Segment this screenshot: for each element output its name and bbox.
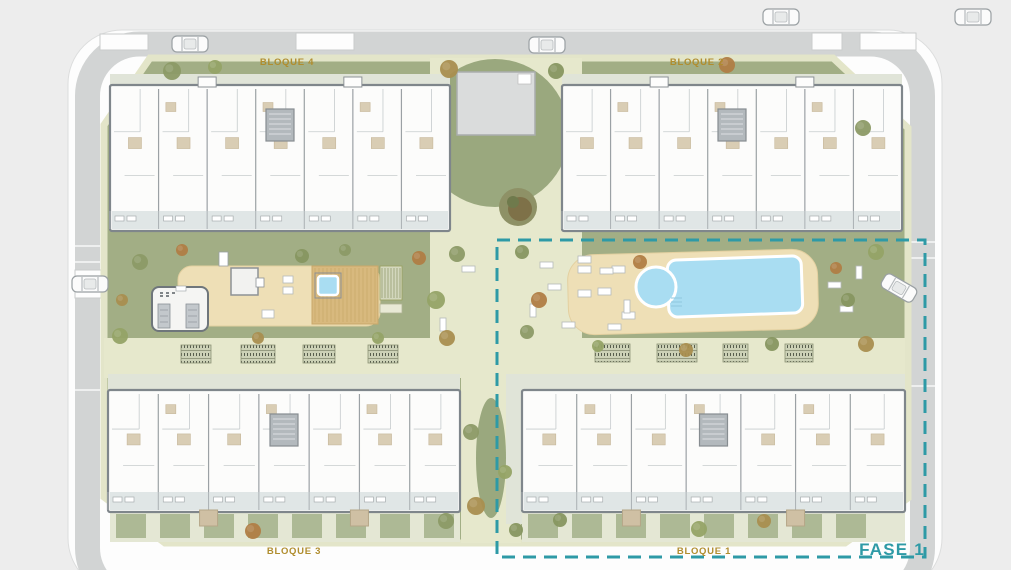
building-bloque-4[interactable] — [110, 77, 450, 231]
sun-lounger — [608, 324, 621, 330]
sun-lounger — [840, 306, 853, 312]
tree-icon — [679, 343, 693, 357]
tree-icon — [858, 336, 874, 352]
tree-icon — [515, 245, 529, 259]
stair-core — [266, 109, 294, 141]
bloque-4-label: BLOQUE 4 — [260, 57, 314, 68]
stair-core — [718, 109, 746, 141]
tree-icon — [531, 292, 547, 308]
sun-lounger — [600, 268, 613, 274]
tree-icon — [163, 62, 181, 80]
garden-plot — [181, 345, 211, 363]
tree-icon — [855, 120, 871, 136]
tree-icon — [295, 249, 309, 263]
tree-icon — [463, 424, 479, 440]
planted-mound — [499, 188, 537, 226]
sun-lounger — [548, 284, 561, 290]
tree-icon — [372, 332, 384, 344]
spa-pool — [318, 276, 338, 295]
sun-lounger — [440, 318, 446, 331]
tree-icon — [757, 514, 771, 528]
tree-icon — [252, 332, 264, 344]
garden-plot — [785, 344, 813, 362]
site-plan-svg: BLOQUE 4 BLOQUE 2 BLOQUE 3 BLOQUE 1 FASE… — [0, 0, 1011, 570]
tree-icon — [691, 521, 707, 537]
garden-plot — [303, 345, 335, 363]
car-icon — [763, 9, 799, 25]
car-icon — [72, 276, 108, 292]
tree-icon — [427, 291, 445, 309]
building-bloque-3[interactable] — [108, 390, 460, 526]
car-icon — [529, 37, 565, 53]
tree-icon — [412, 251, 426, 265]
swimming-pool — [667, 256, 803, 318]
bench — [380, 304, 402, 313]
stair-core — [700, 414, 728, 446]
car-icon — [955, 9, 991, 25]
garden-plot — [241, 345, 275, 363]
bloque-3-label: BLOQUE 3 — [267, 546, 321, 557]
tree-icon — [112, 328, 128, 344]
tree-icon — [132, 254, 148, 270]
sun-lounger — [828, 282, 841, 288]
building-bloque-1[interactable] — [522, 390, 905, 526]
central-structure-door — [518, 74, 531, 84]
tree-icon — [498, 465, 512, 479]
sun-lounger — [562, 322, 575, 328]
tree-icon — [841, 293, 855, 307]
tree-icon — [520, 325, 534, 339]
kids-pool — [636, 267, 676, 307]
site-plan: BLOQUE 4 BLOQUE 2 BLOQUE 3 BLOQUE 1 FASE… — [0, 0, 1011, 570]
pavilion — [231, 268, 258, 295]
tree-icon — [868, 244, 884, 260]
tree-icon — [439, 330, 455, 346]
pool-deck — [567, 249, 819, 336]
tree-icon — [176, 244, 188, 256]
tree-icon — [467, 497, 485, 515]
stair-core — [270, 414, 298, 446]
pergola-slats — [382, 268, 400, 298]
garden-plot — [368, 345, 398, 363]
tree-icon — [592, 340, 604, 352]
tree-icon — [553, 513, 567, 527]
tree-icon — [830, 262, 842, 274]
tree-icon — [339, 244, 351, 256]
tree-icon — [633, 255, 647, 269]
building-bloque-2[interactable] — [562, 77, 902, 231]
tree-icon — [116, 294, 128, 306]
tree-icon — [765, 337, 779, 351]
tree-icon — [449, 246, 465, 262]
tree-icon — [509, 523, 523, 537]
fase-1-label: FASE 1 — [859, 540, 925, 559]
sun-lounger — [462, 266, 475, 272]
tree-icon — [440, 60, 458, 78]
tree-icon — [548, 63, 564, 79]
garden-plot — [723, 344, 748, 362]
car-icon — [172, 36, 208, 52]
tree-icon — [245, 523, 261, 539]
sun-lounger — [856, 266, 862, 279]
bloque-1-label: BLOQUE 1 — [677, 546, 731, 557]
gym-building — [152, 286, 208, 331]
tree-icon — [208, 60, 222, 74]
sun-lounger — [540, 262, 553, 268]
tree-icon — [438, 513, 454, 529]
sun-lounger — [624, 300, 630, 313]
bloque-2-label: BLOQUE 2 — [670, 57, 724, 68]
